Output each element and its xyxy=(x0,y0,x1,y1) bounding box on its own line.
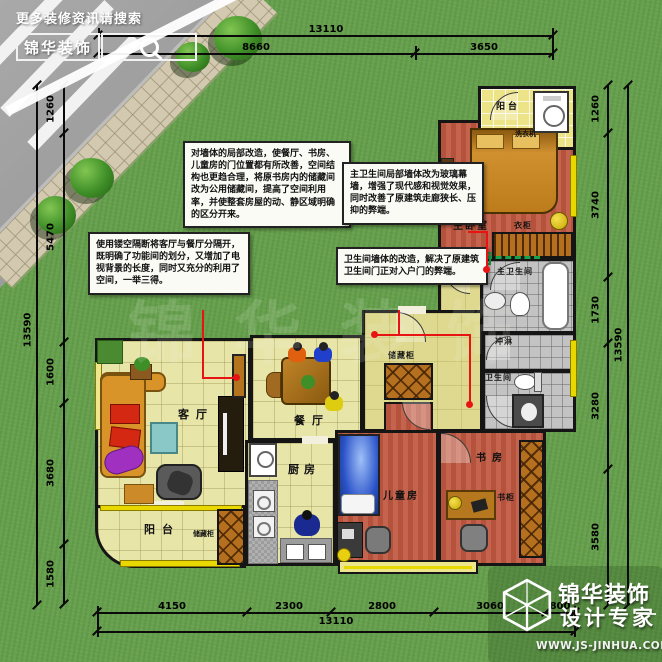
label-kitchen: 厨房 xyxy=(288,461,320,477)
toilet-tank xyxy=(534,372,542,392)
dim-left-seg: 5470 xyxy=(46,223,57,251)
dim-bottom-seg: 4150 xyxy=(158,601,186,612)
dining-table xyxy=(281,357,331,405)
person-cooking xyxy=(294,514,320,536)
kitchen-door-gap xyxy=(302,436,328,444)
wardrobe xyxy=(492,232,573,258)
washer-panel xyxy=(543,96,561,101)
tv-screen xyxy=(223,413,227,455)
coffee-table xyxy=(150,422,178,454)
dim-top-seg: 8660 xyxy=(242,42,270,53)
pillow-children xyxy=(341,494,375,514)
footer-rule xyxy=(640,613,656,615)
toilet-master xyxy=(510,292,530,316)
toilet-bathroom xyxy=(514,374,536,390)
person-head xyxy=(319,342,328,351)
label-storage-corridor: 储藏柜 xyxy=(388,350,415,361)
label-living: 客厅 xyxy=(178,406,214,422)
storage-cabinet-corridor xyxy=(384,363,433,400)
dim-bottom-seg: 2300 xyxy=(275,601,303,612)
brand-text: 锦华装饰 xyxy=(24,37,92,58)
dim-right-seg: 3740 xyxy=(591,191,602,219)
diner-orange xyxy=(288,347,306,362)
tv-cabinet xyxy=(218,396,244,472)
dim-right-seg: 3280 xyxy=(591,392,602,420)
dining-chair xyxy=(266,372,281,398)
dim-left-seg: 1580 xyxy=(46,560,57,588)
dim-left-seg: 1600 xyxy=(46,358,57,386)
label-bookcase: 书柜 xyxy=(497,492,515,503)
annotation-walls: 对墙体的局部改造，使餐厅、书房、儿童房的门位置都有所改善，空间结构也更趋合理，将… xyxy=(183,141,351,228)
bay-window xyxy=(338,560,478,574)
dim-line xyxy=(627,85,629,605)
annotation-line xyxy=(374,334,471,336)
floorplan-scene: 更多装修资讯请搜索 锦华装饰 锦华装饰 xyxy=(0,0,662,662)
footer-website[interactable]: WWW.JS-JINHUA.COM xyxy=(536,640,662,652)
bay-window-glass xyxy=(344,566,472,569)
glass-curtain-wall xyxy=(486,256,540,259)
annotation-bathroom: 卫生间墙体的改造，解决了原建筑卫生间门正对入户门的弊端。 xyxy=(336,247,488,285)
plant xyxy=(134,357,150,371)
vanity xyxy=(512,394,544,428)
dim-right-overall: 13590 xyxy=(614,328,625,363)
person-head xyxy=(330,391,339,400)
person-sitting xyxy=(165,469,195,498)
annotation-dot xyxy=(233,374,240,381)
fridge-detail xyxy=(257,451,274,468)
tree-icon xyxy=(70,158,114,198)
dim-right-seg: 3580 xyxy=(591,523,602,551)
brand-box: 锦华装饰 xyxy=(16,33,100,61)
dim-left-seg: 1260 xyxy=(46,95,57,123)
planter xyxy=(97,340,123,364)
label-shower: 冲淋 xyxy=(495,336,513,347)
person-head xyxy=(293,342,302,351)
label-balcony-top: 阳台 xyxy=(496,99,520,112)
annotation-dot xyxy=(483,266,490,273)
washing-machine xyxy=(533,91,569,133)
promo-text: 更多装修资讯请搜索 xyxy=(16,8,142,27)
dim-top-overall: 13110 xyxy=(309,24,344,35)
sofa-cushion xyxy=(110,404,140,424)
monitor xyxy=(471,498,488,513)
pillow xyxy=(476,134,504,149)
label-master-bathroom: 主卫生间 xyxy=(497,266,533,277)
bookcase xyxy=(519,440,544,558)
label-washer: 洗衣机 xyxy=(515,129,536,139)
dim-bottom-overall: 13110 xyxy=(319,616,354,627)
label-children: 儿童房 xyxy=(383,487,419,502)
burner xyxy=(257,522,271,536)
table-plant xyxy=(301,375,315,389)
recliner-chair xyxy=(156,464,202,500)
stove xyxy=(253,490,275,512)
footer-tagline: 设计专家 xyxy=(560,602,656,632)
sink-bathroom xyxy=(521,403,537,421)
label-storage-balcony: 储藏柜 xyxy=(193,529,214,539)
stove xyxy=(253,516,275,538)
storage-cabinet-balcony xyxy=(217,509,245,565)
annotation-line xyxy=(202,377,236,379)
nightstand xyxy=(550,212,568,230)
bathtub xyxy=(542,262,569,330)
annotation-master-bath: 主卫生间局部墙体改为玻璃幕墙，增强了现代感和视觉效果，同时改善了原建筑走廊狭长、… xyxy=(342,162,484,225)
person-head xyxy=(302,510,312,520)
dim-line xyxy=(36,85,38,605)
desk-monitor xyxy=(342,529,354,539)
annotation-line xyxy=(202,310,204,378)
fridge xyxy=(249,443,277,477)
dim-left-overall: 13590 xyxy=(23,313,34,348)
burner xyxy=(257,496,271,510)
annotation-partition: 使用镂空隔断将客厅与餐厅分隔开，既明确了功能间的划分，又增加了电视背景的长度，同… xyxy=(88,232,250,295)
annotation-line xyxy=(468,231,488,233)
dim-right-seg: 1730 xyxy=(591,296,602,324)
dim-left-seg: 3680 xyxy=(46,459,57,487)
sink-basin xyxy=(286,544,304,560)
annotation-dot xyxy=(371,331,378,338)
label-study: 书房 xyxy=(476,449,508,464)
chair-study xyxy=(460,524,488,552)
cube-logo-icon xyxy=(498,576,556,634)
side-table xyxy=(124,484,154,504)
sink-master xyxy=(484,292,506,310)
annotation-line xyxy=(469,334,471,404)
window-bathroom xyxy=(570,340,577,397)
dim-line xyxy=(63,85,65,604)
window-bedroom xyxy=(570,155,577,217)
plant-pot xyxy=(130,364,152,380)
annotation-line xyxy=(398,310,400,335)
annotation-line xyxy=(486,231,488,269)
washer-drum xyxy=(543,105,565,127)
diner-blue xyxy=(314,347,332,362)
annotation-dot xyxy=(466,401,473,408)
label-balcony-bottom: 阳台 xyxy=(144,521,180,537)
label-bathroom: 卫生间 xyxy=(485,372,512,383)
sink-basin xyxy=(308,544,326,560)
sink-counter xyxy=(280,538,332,563)
dim-right-seg: 1260 xyxy=(591,95,602,123)
chair-children xyxy=(365,526,391,554)
diner-yellow xyxy=(325,396,343,411)
label-wardrobe: 衣柜 xyxy=(514,220,532,231)
label-dining: 餐厅 xyxy=(294,412,330,428)
dim-top-seg: 3650 xyxy=(470,42,498,53)
desk-lamp xyxy=(448,496,462,510)
dim-bottom-seg: 2800 xyxy=(368,601,396,612)
clock-decor xyxy=(337,548,351,562)
